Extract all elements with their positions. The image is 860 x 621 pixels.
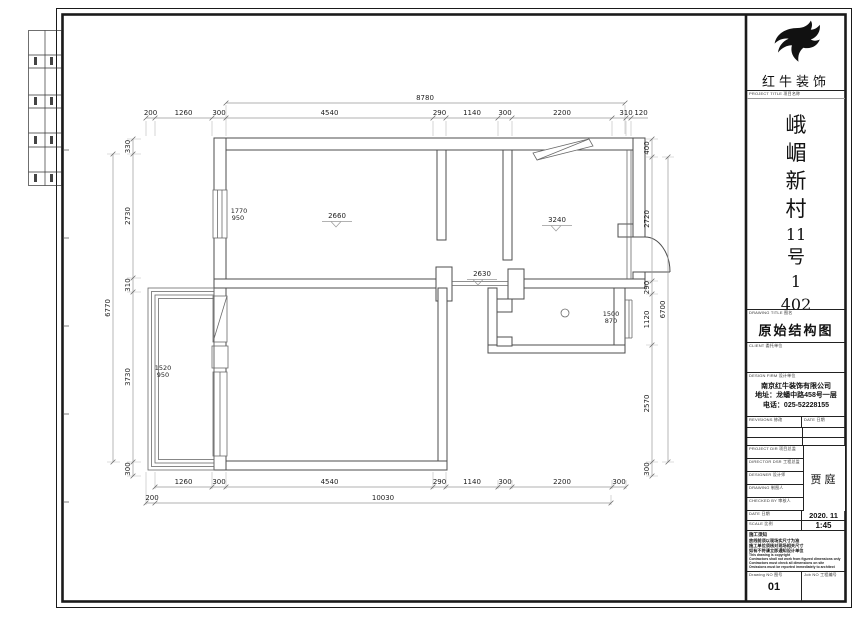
- dim-label: 2720: [643, 210, 651, 228]
- brand-name: 红牛装饰: [747, 71, 845, 90]
- project-title-line: 402: [781, 293, 812, 310]
- window-left-1770: [213, 190, 227, 238]
- balcony-glazing: [148, 288, 214, 470]
- revisions-label: REVISIONS 修改: [747, 417, 802, 427]
- dim-label: 300: [498, 109, 511, 117]
- dim-label: 8780: [416, 94, 434, 102]
- revisions-table: REVISIONS 修改 DATE 日期: [747, 417, 845, 446]
- wall-bottom: [214, 461, 447, 470]
- duct-lines: [627, 150, 631, 279]
- dim-label: 1120: [643, 311, 651, 329]
- passage-threshold: [452, 282, 508, 286]
- project-title-line: 村: [786, 195, 807, 223]
- dim-label: 300: [498, 478, 511, 486]
- dimension-lines: [107, 101, 674, 506]
- dim-label: 6770: [104, 299, 112, 317]
- dim-label: 300: [643, 462, 651, 475]
- dim-label: 290: [433, 478, 446, 486]
- company-name: 南京红牛装饰有限公司: [747, 382, 845, 392]
- project-title-label: PROJECT TITLE 项目名称: [747, 91, 845, 97]
- dim-label: 1260: [175, 109, 193, 117]
- date-label: DATE 日期: [747, 511, 802, 520]
- date-value: 2020. 11: [802, 511, 845, 520]
- project-title-line: 号: [787, 246, 805, 270]
- dim-label: 3730: [124, 368, 132, 386]
- door-swing-arc: [645, 237, 670, 272]
- pier-lowerright-1: [497, 299, 512, 312]
- dim-label: 2200: [553, 478, 571, 486]
- strip-stamp-marks: [34, 57, 53, 182]
- pier-lowerright-2: [497, 337, 512, 346]
- dim-label: 2200: [553, 109, 571, 117]
- dim-label: 4540: [321, 478, 339, 486]
- sheet-frame: [57, 9, 852, 608]
- dim-label: 1140: [463, 109, 481, 117]
- window-right-1500: [625, 300, 632, 338]
- dim-label: 6700: [659, 301, 667, 319]
- project-title-line: 峨: [786, 111, 807, 139]
- dim-label: 300: [612, 478, 625, 486]
- drawing-title: 原始结构图: [747, 320, 845, 339]
- dim-label: 200: [145, 494, 158, 502]
- note-line: Omissions must be reported immediately t…: [749, 565, 845, 569]
- project-title-line: 1: [791, 270, 801, 293]
- construction-notes: 施工须知 放线前须以现场实尺寸为准 施工单位须核对现场相关尺寸 如有不符请立即通…: [747, 531, 845, 572]
- drawing-title-section: DRAWING TITLE 图名 原始结构图: [747, 310, 845, 343]
- dim-label: 300: [212, 109, 225, 117]
- dimension-labels: 8780 200 1260 300 4540 290 1140 300 2200…: [104, 94, 667, 502]
- company-phone: 电话：025-52228155: [747, 401, 845, 411]
- project-title: 峨 嵋 新 村 11 号 1 402: [747, 99, 845, 310]
- company-address: 地址：龙蟠中路458号一层: [747, 391, 845, 401]
- dim-label: 2570: [643, 395, 651, 413]
- dim-label: 10030: [372, 494, 394, 502]
- dim-label: 300: [212, 478, 225, 486]
- dim-label: 310: [124, 278, 132, 291]
- extension-lines: [107, 105, 674, 505]
- entry-door: [645, 237, 670, 272]
- dim-label: 290: [433, 109, 446, 117]
- title-block: 红牛装饰 PROJECT TITLE 项目名称 峨 嵋 新 村 11 号 1 4…: [747, 15, 845, 601]
- dim-label: 300: [124, 462, 132, 475]
- wall-middle-left: [214, 279, 438, 288]
- design-firm-section: DESIGN FIRM 设计单位 南京红牛装饰有限公司 地址：龙蟠中路458号一…: [747, 373, 845, 417]
- ceiling-height-label: 2660: [328, 212, 346, 220]
- dim-label: 2730: [124, 207, 132, 225]
- drawing-no-value: 01: [747, 581, 801, 593]
- window-size-label: 870: [605, 317, 617, 325]
- drawing-number-section: Drawing NO 图号 01 Job NO 工程编号: [747, 572, 845, 601]
- job-no-label: Job NO 工程编号: [802, 572, 837, 578]
- drain-symbol: [561, 309, 569, 317]
- wall-lowerright-left: [488, 288, 497, 353]
- ceiling-height-label: 2630: [473, 270, 491, 278]
- revisions-date-label: DATE 日期: [802, 417, 825, 427]
- revision-row: [747, 428, 845, 438]
- revision-row: [747, 438, 845, 446]
- dim-label: 290: [643, 281, 651, 294]
- window-size-label: 950: [157, 371, 169, 379]
- dim-label: 200: [144, 109, 157, 117]
- client-label: CLIENT 委托单位: [747, 343, 845, 349]
- personnel-table: PROJECT DIR 项目总监 DIRECTOR DSR 工程总监 DESIG…: [747, 446, 845, 531]
- pier-middle-right: [508, 269, 524, 299]
- window-size-label: 950: [232, 214, 244, 222]
- dim-label: 4540: [321, 109, 339, 117]
- project-title-line: 嵋: [786, 139, 807, 167]
- dim-label: 400: [643, 141, 651, 154]
- project-title-line: 11: [786, 223, 806, 246]
- dim-label: 330: [124, 140, 132, 153]
- drawing-title-label: DRAWING TITLE 图名: [747, 310, 845, 316]
- dim-label: 310: [619, 109, 632, 117]
- drawing-sheet: 8780 200 1260 300 4540 290 1140 300 2200…: [0, 0, 860, 616]
- design-firm-label: DESIGN FIRM 设计单位: [747, 373, 845, 379]
- floor-plan-canvas: 8780 200 1260 300 4540 290 1140 300 2200…: [0, 0, 860, 616]
- dim-label: 1260: [175, 478, 193, 486]
- ceiling-height-label: 3240: [548, 216, 566, 224]
- scale-value: 1:45: [802, 521, 845, 531]
- wall-middle-right: [524, 279, 645, 288]
- dim-label: 1140: [463, 478, 481, 486]
- brand-header: 红牛装饰: [747, 15, 845, 91]
- scale-label: SCALE 比例: [747, 521, 802, 531]
- designer-name: 贾庭: [803, 446, 845, 511]
- wall-room-ab: [437, 150, 446, 240]
- project-title-line: 新: [786, 167, 807, 195]
- dim-label: 120: [634, 109, 647, 117]
- project-title-label-row: PROJECT TITLE 项目名称: [747, 91, 845, 99]
- wall-lowerleft-right: [438, 288, 447, 470]
- client-section: CLIENT 委托单位: [747, 343, 845, 373]
- walls: [214, 138, 645, 470]
- wall-room-bc: [503, 150, 512, 260]
- drawing-no-label: Drawing NO 图号: [747, 572, 801, 578]
- swallow-logo-icon: [768, 19, 824, 65]
